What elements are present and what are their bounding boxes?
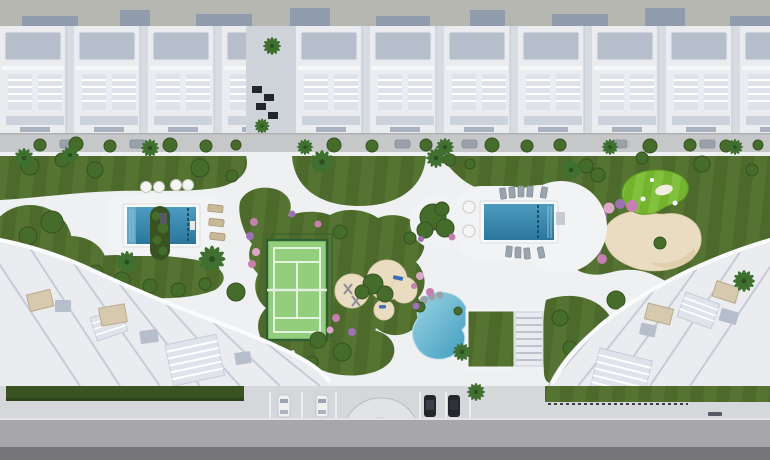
front-hedge <box>6 386 244 400</box>
pergola <box>515 312 543 366</box>
lap-pool-right <box>484 204 554 240</box>
grass-roof-building <box>467 310 515 368</box>
passage <box>246 26 296 134</box>
render-canvas: Aerial top-down 3D architectural renderi… <box>0 0 770 460</box>
apartment-row-top <box>0 26 770 134</box>
site-plan-render: Aerial top-down 3D architectural renderi… <box>0 0 770 460</box>
road <box>0 418 770 460</box>
padel-court <box>267 234 332 340</box>
front-lawn-strip <box>545 386 770 402</box>
sun-loungers <box>208 204 226 241</box>
drain <box>708 412 722 416</box>
